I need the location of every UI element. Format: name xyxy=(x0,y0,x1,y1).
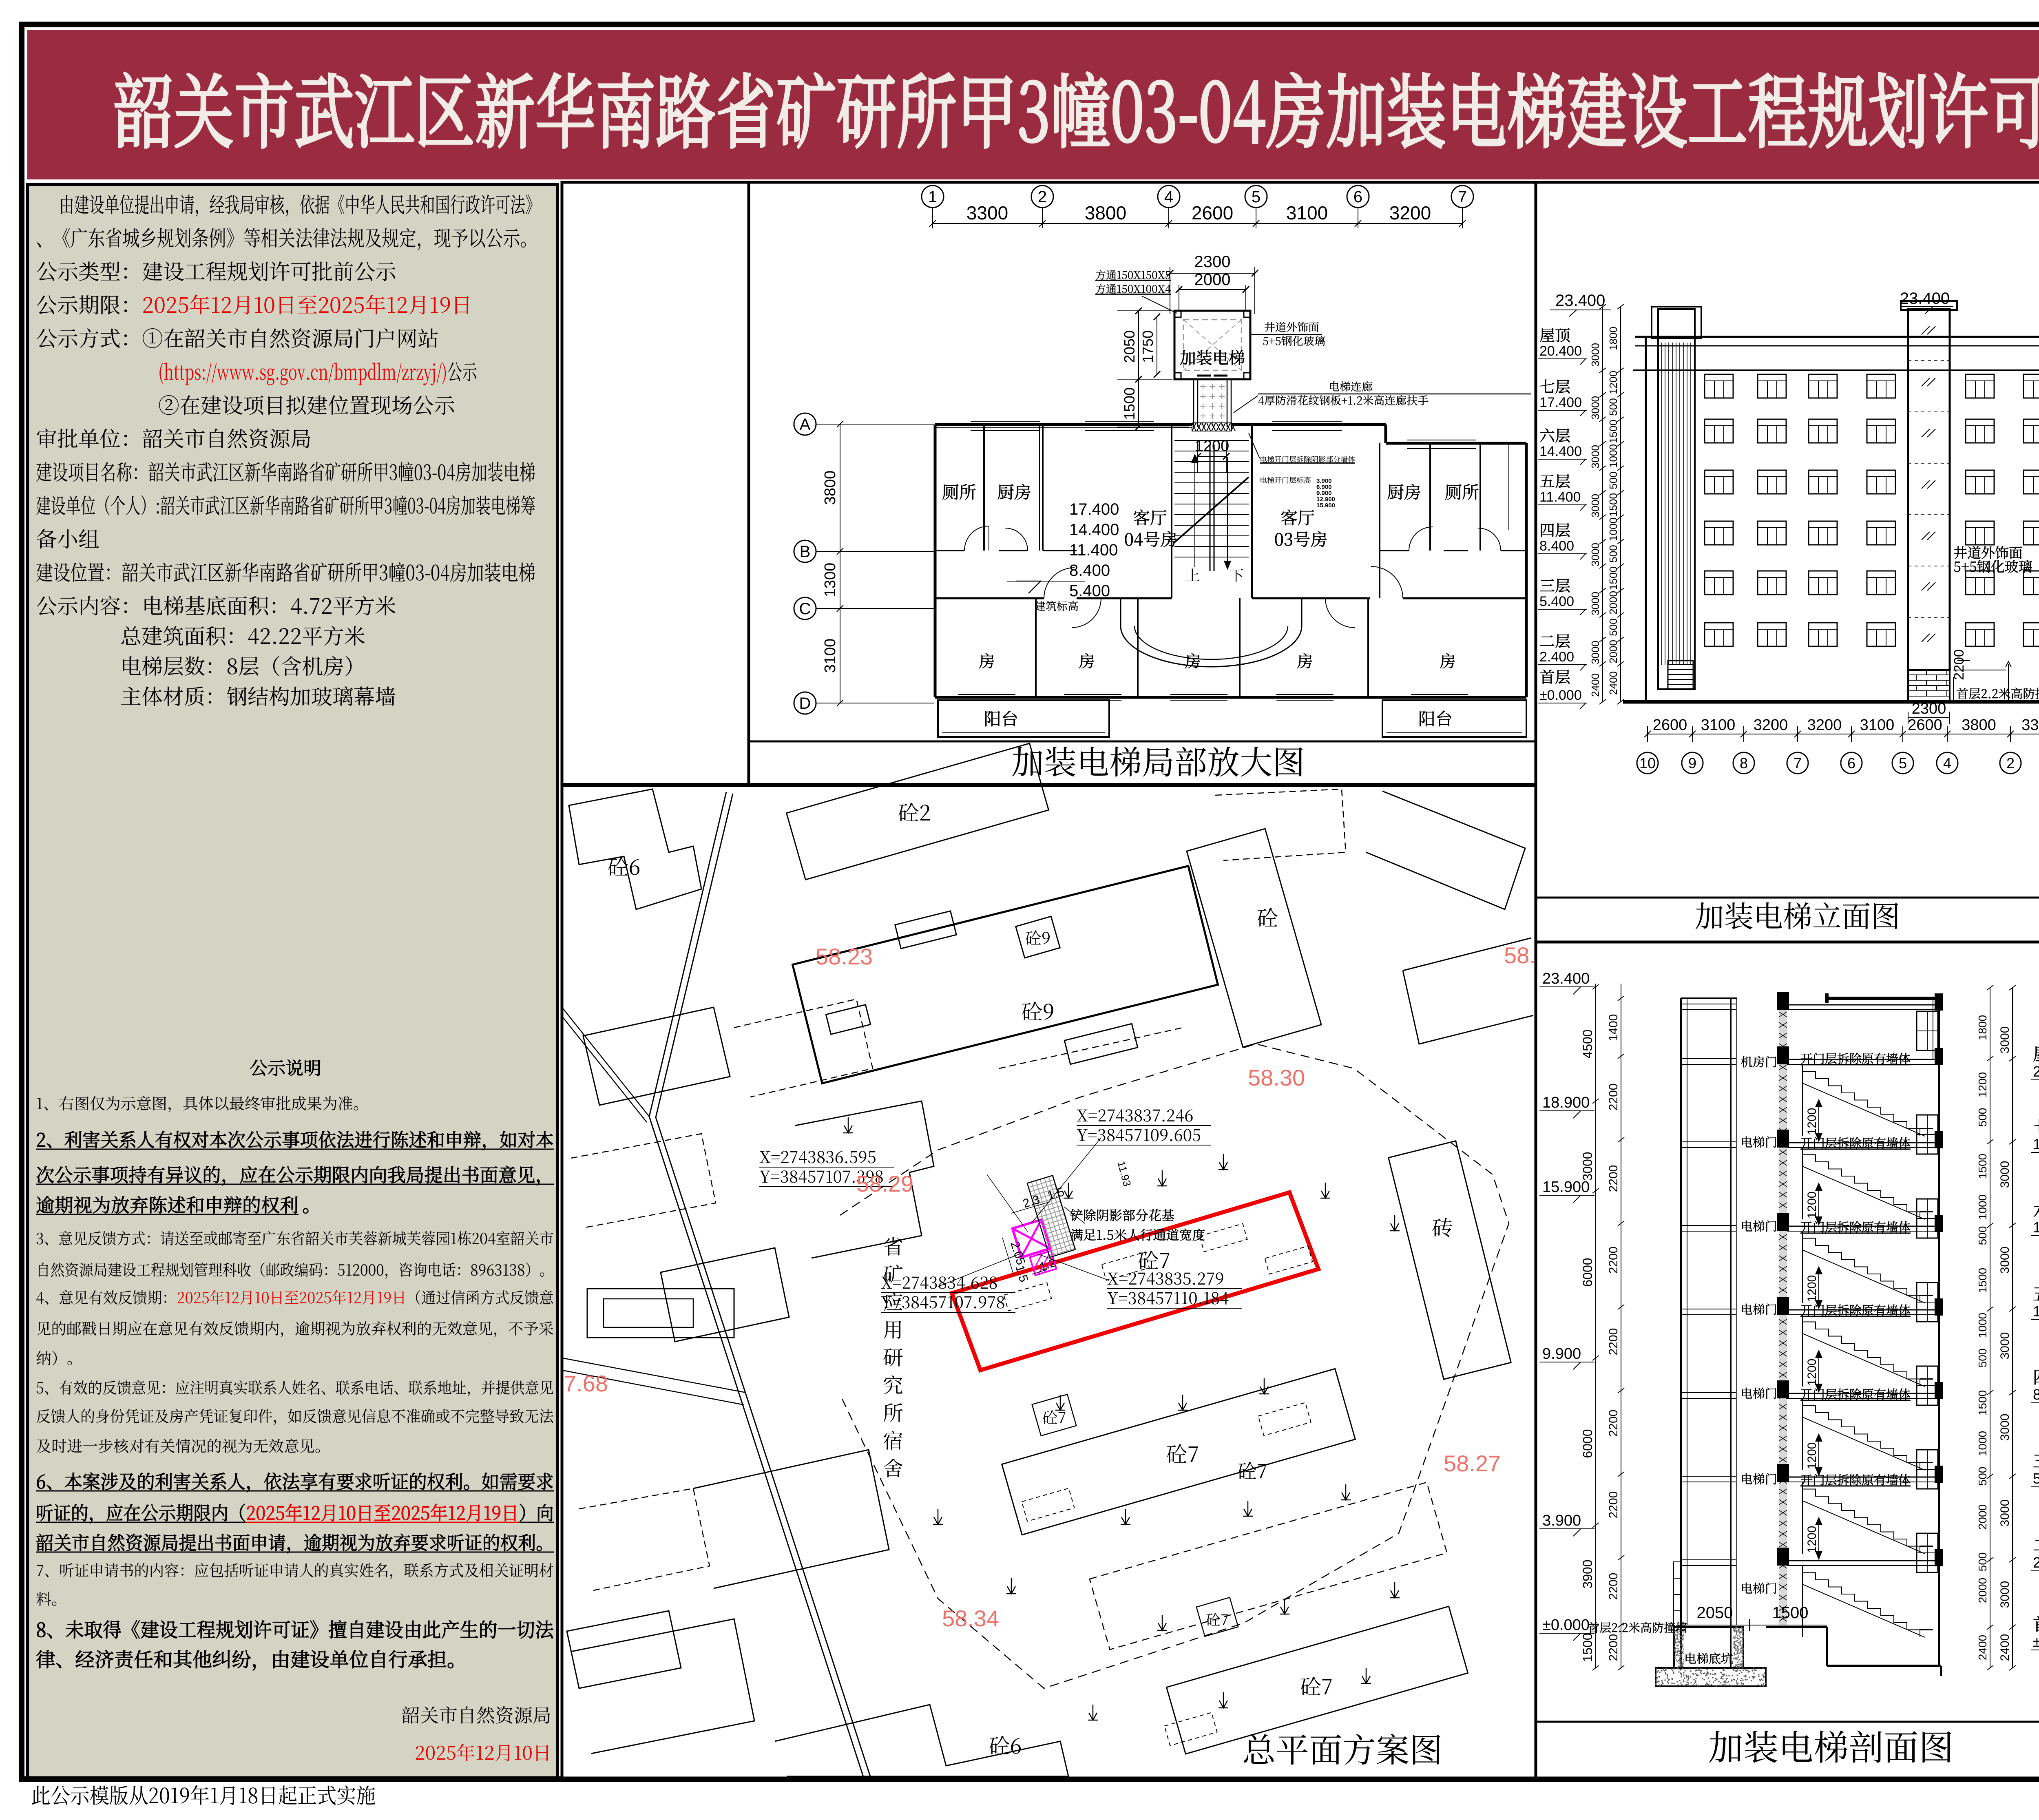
svg-text:1000: 1000 xyxy=(1607,517,1619,541)
svg-text:2200: 2200 xyxy=(1607,1491,1620,1519)
svg-text:17.400: 17.400 xyxy=(1069,500,1119,518)
svg-text:D: D xyxy=(799,694,811,712)
svg-text:3000: 3000 xyxy=(1589,396,1601,420)
svg-text:3000: 3000 xyxy=(1998,1414,2012,1441)
svg-text:8.400: 8.400 xyxy=(2033,1386,2039,1403)
svg-text:58.30: 58.30 xyxy=(1248,1065,1305,1090)
svg-text:1200: 1200 xyxy=(1976,1072,1989,1097)
svg-text:11.400: 11.400 xyxy=(1069,541,1118,559)
svg-text:2.400: 2.400 xyxy=(1539,649,1574,665)
svg-text:3000: 3000 xyxy=(1589,494,1601,517)
svg-text:2050: 2050 xyxy=(1121,330,1138,363)
svg-text:500: 500 xyxy=(1976,1349,1989,1368)
svg-text:2000: 2000 xyxy=(1607,591,1619,615)
svg-text:3800: 3800 xyxy=(1085,202,1126,223)
svg-text:58.29: 58.29 xyxy=(856,1171,913,1196)
svg-text:1500: 1500 xyxy=(1772,1604,1809,1622)
svg-text:7: 7 xyxy=(1458,188,1467,206)
svg-text:2300: 2300 xyxy=(1194,253,1231,271)
svg-text:1200: 1200 xyxy=(1805,1108,1819,1135)
svg-text:4: 4 xyxy=(1164,188,1173,206)
svg-text:1200: 1200 xyxy=(1607,371,1619,394)
svg-text:6: 6 xyxy=(1847,755,1855,772)
svg-text:1500: 1500 xyxy=(1976,1154,1989,1179)
svg-text:2200: 2200 xyxy=(1607,1410,1620,1437)
svg-text:1500: 1500 xyxy=(1121,387,1138,420)
svg-text:1750: 1750 xyxy=(1139,330,1156,363)
svg-text:2400: 2400 xyxy=(1976,1635,1989,1660)
svg-text:9.900: 9.900 xyxy=(1542,1345,1581,1362)
svg-text:18.900: 18.900 xyxy=(1542,1094,1590,1111)
svg-text:3000: 3000 xyxy=(1998,1247,2012,1274)
svg-text:5: 5 xyxy=(1899,755,1907,772)
svg-text:3300: 3300 xyxy=(966,202,1008,223)
svg-text:C: C xyxy=(799,600,811,618)
svg-text:3800: 3800 xyxy=(822,471,839,505)
svg-text:3000: 3000 xyxy=(1998,1161,2012,1188)
svg-text:2200: 2200 xyxy=(1607,1328,1620,1356)
svg-text:1200: 1200 xyxy=(1805,1526,1819,1553)
svg-text:1200: 1200 xyxy=(1805,1442,1819,1470)
svg-text:A: A xyxy=(800,416,811,433)
svg-text:3300: 3300 xyxy=(2021,717,2039,734)
svg-text:1: 1 xyxy=(928,188,937,206)
svg-text:1500: 1500 xyxy=(1976,1390,1989,1415)
svg-text:3200: 3200 xyxy=(1389,202,1431,223)
svg-text:58.27: 58.27 xyxy=(1444,1451,1501,1476)
svg-text:17.400: 17.400 xyxy=(2033,1136,2039,1152)
svg-text:2200: 2200 xyxy=(1607,1573,1620,1600)
svg-text:20.400: 20.400 xyxy=(2033,1063,2039,1080)
svg-text:7.68: 7.68 xyxy=(564,1371,608,1396)
svg-text:1500: 1500 xyxy=(1607,566,1619,590)
svg-text:3100: 3100 xyxy=(1286,202,1328,223)
svg-text:2400: 2400 xyxy=(1607,671,1619,695)
svg-text:3000: 3000 xyxy=(1589,343,1601,367)
svg-text:5: 5 xyxy=(1252,188,1261,206)
svg-text:2400: 2400 xyxy=(1998,1634,2012,1661)
svg-text:±0.000: ±0.000 xyxy=(2033,1633,2039,1650)
svg-text:1000: 1000 xyxy=(1607,444,1619,468)
svg-text:1800: 1800 xyxy=(1607,327,1619,350)
svg-text:2600: 2600 xyxy=(1653,717,1687,734)
svg-text:5.400: 5.400 xyxy=(1539,594,1574,609)
svg-text:2: 2 xyxy=(1038,188,1047,206)
svg-text:1500: 1500 xyxy=(1580,1633,1595,1662)
svg-text:2000: 2000 xyxy=(1976,1504,1989,1530)
svg-text:23.400: 23.400 xyxy=(1900,290,1950,307)
svg-text:500: 500 xyxy=(1607,618,1619,636)
svg-text:3000: 3000 xyxy=(1998,1499,2012,1527)
svg-text:58.23: 58.23 xyxy=(816,944,873,969)
svg-text:1200: 1200 xyxy=(1805,1275,1819,1303)
svg-text:1800: 1800 xyxy=(1976,1015,1989,1040)
svg-text:6000: 6000 xyxy=(1580,1429,1595,1458)
svg-text:1200: 1200 xyxy=(1805,1192,1819,1219)
svg-text:1000: 1000 xyxy=(1976,1313,1989,1338)
svg-text:3100: 3100 xyxy=(1701,717,1736,734)
svg-text:3000: 3000 xyxy=(1998,1581,2012,1608)
svg-text:2600: 2600 xyxy=(1192,202,1233,223)
svg-text:3100: 3100 xyxy=(1860,717,1895,734)
svg-text:500: 500 xyxy=(1607,471,1619,489)
svg-text:2300: 2300 xyxy=(1912,700,1946,717)
svg-text:3200: 3200 xyxy=(1754,717,1788,734)
svg-text:1200: 1200 xyxy=(1805,1359,1819,1386)
svg-text:15.900: 15.900 xyxy=(1316,502,1335,509)
svg-text:3000: 3000 xyxy=(1589,445,1601,469)
svg-text:1500: 1500 xyxy=(1607,493,1619,517)
svg-text:10: 10 xyxy=(1639,755,1656,772)
svg-text:4: 4 xyxy=(1943,755,1951,772)
svg-text:2200: 2200 xyxy=(1607,1165,1620,1192)
svg-text:1000: 1000 xyxy=(1976,1431,1989,1456)
svg-text:11.400: 11.400 xyxy=(2033,1303,2039,1320)
svg-text:14.400: 14.400 xyxy=(2033,1219,2039,1236)
svg-text:58.34: 58.34 xyxy=(942,1605,999,1631)
svg-text:500: 500 xyxy=(1976,1467,1989,1486)
svg-text:3000: 3000 xyxy=(1589,543,1601,566)
svg-text:2600: 2600 xyxy=(1908,717,1942,734)
svg-text:11.400: 11.400 xyxy=(1539,489,1581,505)
svg-text:±0.000: ±0.000 xyxy=(1542,1617,1590,1634)
svg-text:1500: 1500 xyxy=(1976,1268,1989,1293)
svg-text:14.400: 14.400 xyxy=(1539,444,1582,459)
svg-text:3000: 3000 xyxy=(1998,1332,2012,1360)
svg-text:3200: 3200 xyxy=(1807,717,1842,734)
svg-text:1500: 1500 xyxy=(1607,420,1619,443)
svg-text:500: 500 xyxy=(1607,545,1619,562)
svg-text:6: 6 xyxy=(1353,188,1362,206)
svg-text:±0.000: ±0.000 xyxy=(1539,688,1582,703)
svg-text:3100: 3100 xyxy=(822,639,839,673)
svg-text:23.400: 23.400 xyxy=(1555,292,1605,310)
svg-text:1300: 1300 xyxy=(822,563,839,597)
svg-text:3900: 3900 xyxy=(1580,1559,1595,1588)
svg-text:2050: 2050 xyxy=(1697,1604,1733,1622)
svg-text:9: 9 xyxy=(1688,755,1696,772)
svg-text:500: 500 xyxy=(1976,1108,1989,1127)
svg-text:5.400: 5.400 xyxy=(1069,582,1110,600)
svg-text:3000: 3000 xyxy=(1589,592,1601,615)
svg-text:8: 8 xyxy=(1740,755,1748,772)
svg-text:2.400: 2.400 xyxy=(2033,1554,2039,1571)
svg-text:58.: 58. xyxy=(1504,942,1536,968)
svg-text:17.400: 17.400 xyxy=(1539,395,1582,410)
svg-text:6000: 6000 xyxy=(1580,1258,1595,1287)
svg-text:2000: 2000 xyxy=(1607,640,1619,663)
svg-text:4500: 4500 xyxy=(1580,1029,1595,1058)
svg-text:20.400: 20.400 xyxy=(1539,343,1582,359)
svg-text:500: 500 xyxy=(1976,1226,1989,1245)
svg-text:2: 2 xyxy=(2006,755,2015,772)
svg-text:2200: 2200 xyxy=(1607,1247,1620,1274)
svg-text:2000: 2000 xyxy=(1194,271,1231,289)
svg-text:1400: 1400 xyxy=(1607,1014,1620,1042)
svg-text:3800: 3800 xyxy=(1962,717,1996,734)
svg-text:3000: 3000 xyxy=(1580,1152,1595,1181)
svg-text:2400: 2400 xyxy=(1589,673,1601,697)
svg-text:2200: 2200 xyxy=(1951,649,1967,680)
svg-text:14.400: 14.400 xyxy=(1069,521,1119,539)
svg-text:B: B xyxy=(800,543,811,561)
svg-text:1000: 1000 xyxy=(1976,1194,1989,1220)
svg-text:23.400: 23.400 xyxy=(1542,970,1590,987)
svg-text:7: 7 xyxy=(1794,755,1802,772)
svg-text:2200: 2200 xyxy=(1607,1084,1620,1111)
svg-text:500: 500 xyxy=(1607,398,1619,416)
svg-text:8.400: 8.400 xyxy=(1539,538,1574,554)
svg-text:3.900: 3.900 xyxy=(1542,1512,1581,1529)
svg-text:2000: 2000 xyxy=(1976,1578,1989,1603)
svg-text:5.400: 5.400 xyxy=(2033,1470,2039,1487)
svg-text:8.400: 8.400 xyxy=(1069,562,1110,579)
svg-text:3000: 3000 xyxy=(1589,641,1601,664)
svg-text:2200: 2200 xyxy=(1607,1634,1620,1661)
svg-text:3000: 3000 xyxy=(1998,1026,2012,1054)
